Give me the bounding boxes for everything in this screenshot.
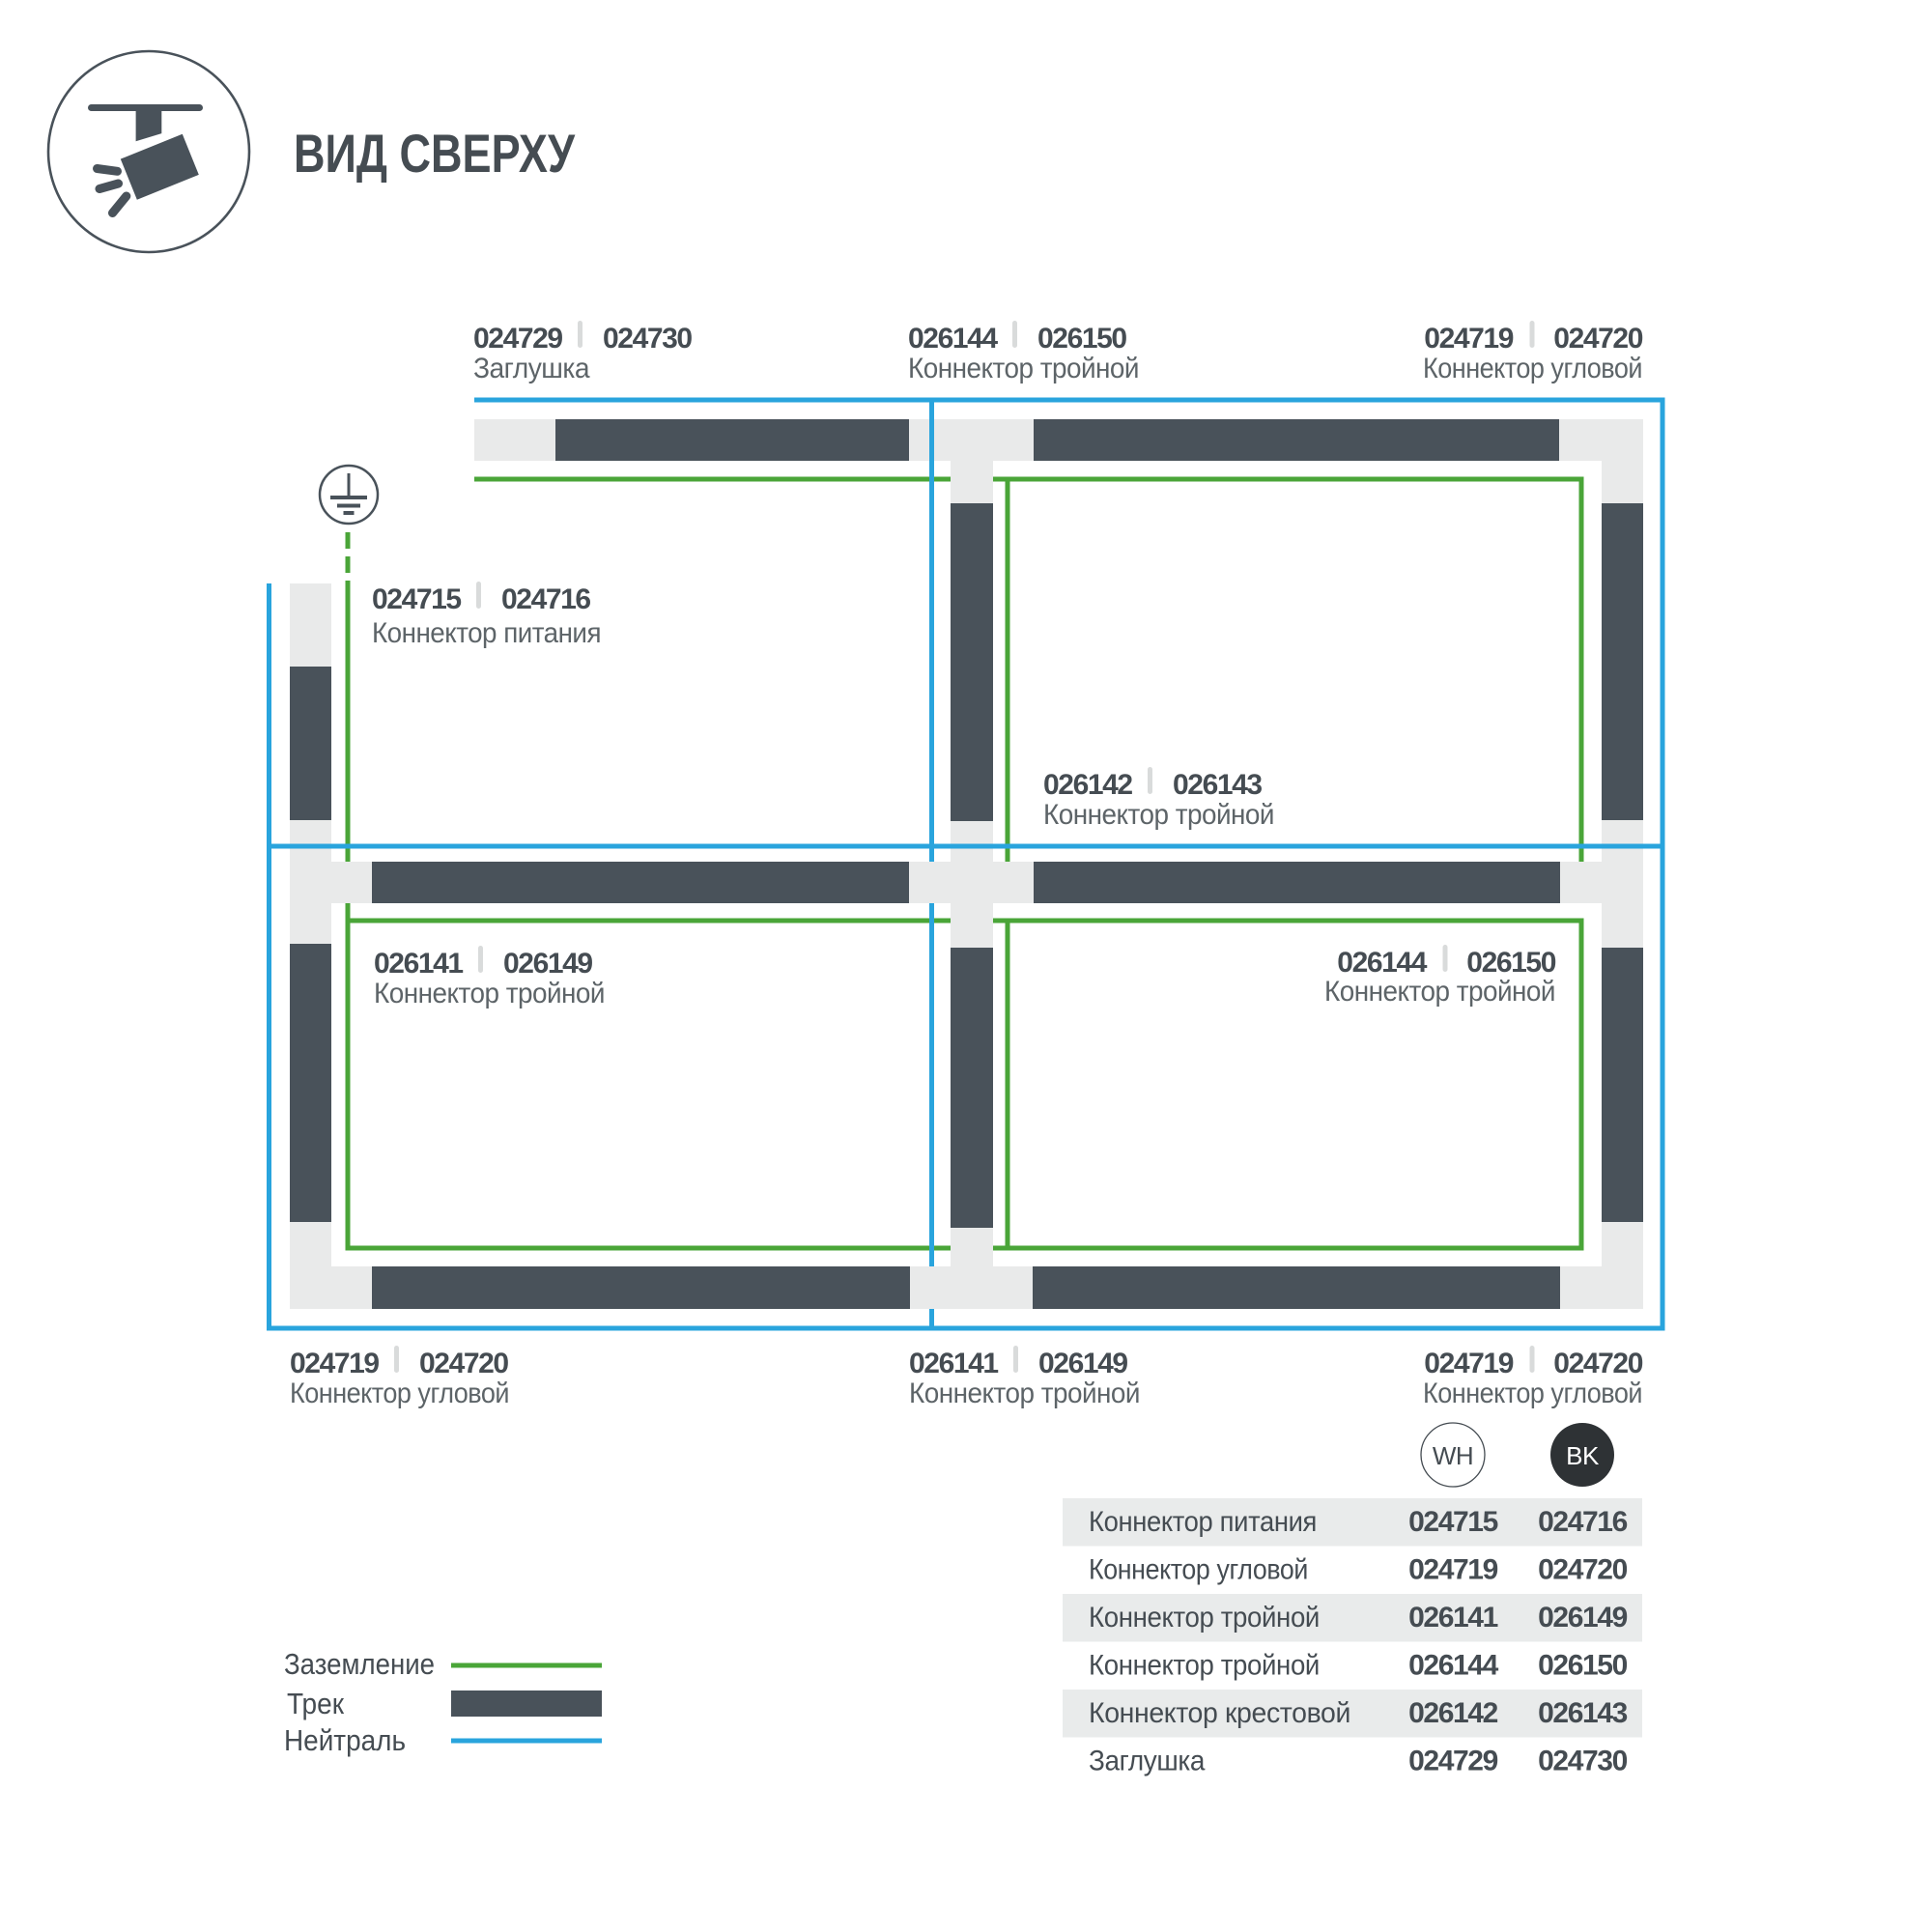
svg-text:Коннектор крестовой: Коннектор крестовой: [1089, 1697, 1350, 1729]
svg-text:Заглушка: Заглушка: [1089, 1746, 1206, 1777]
svg-text:026143: 026143: [1173, 769, 1262, 801]
svg-text:026150: 026150: [1466, 947, 1555, 979]
svg-text:Заземление: Заземление: [284, 1647, 435, 1681]
svg-text:024720: 024720: [1553, 323, 1642, 355]
svg-text:024720: 024720: [1553, 1348, 1642, 1379]
svg-text:Коннектор тройной: Коннектор тройной: [1089, 1650, 1320, 1682]
svg-text:024716: 024716: [501, 583, 590, 615]
svg-text:WH: WH: [1433, 1441, 1473, 1470]
svg-text:026149: 026149: [1038, 1348, 1127, 1379]
svg-text:024719: 024719: [290, 1348, 379, 1379]
svg-text:Коннектор угловой: Коннектор угловой: [290, 1378, 509, 1409]
svg-text:Коннектор тройной: Коннектор тройной: [909, 1378, 1140, 1409]
svg-text:Трек: Трек: [287, 1687, 344, 1720]
svg-text:026144: 026144: [908, 323, 998, 355]
svg-text:026141: 026141: [374, 948, 463, 980]
svg-text:026150: 026150: [1538, 1650, 1627, 1682]
svg-text:024719: 024719: [1424, 1348, 1513, 1379]
svg-text:Коннектор угловой: Коннектор угловой: [1423, 353, 1642, 384]
svg-text:026144: 026144: [1337, 947, 1427, 979]
svg-text:024729: 024729: [473, 323, 562, 355]
svg-text:Коннектор угловой: Коннектор угловой: [1089, 1554, 1308, 1586]
svg-text:Коннектор питания: Коннектор питания: [372, 617, 601, 649]
svg-text:024720: 024720: [419, 1348, 508, 1379]
svg-text:026141: 026141: [1408, 1602, 1497, 1634]
svg-text:ВИД СВЕРХУ: ВИД СВЕРХУ: [294, 123, 576, 184]
svg-text:Коннектор угловой: Коннектор угловой: [1423, 1378, 1642, 1409]
svg-text:BK: BK: [1566, 1441, 1600, 1470]
svg-text:026149: 026149: [503, 948, 592, 980]
svg-text:Коннектор тройной: Коннектор тройной: [1043, 799, 1274, 831]
svg-text:024719: 024719: [1408, 1554, 1497, 1586]
svg-text:026149: 026149: [1538, 1602, 1627, 1634]
svg-text:Коннектор тройной: Коннектор тройной: [374, 978, 605, 1009]
svg-text:024729: 024729: [1408, 1746, 1497, 1777]
svg-text:Коннектор питания: Коннектор питания: [1089, 1506, 1317, 1538]
svg-text:024715: 024715: [372, 583, 461, 615]
svg-text:Нейтраль: Нейтраль: [284, 1723, 406, 1757]
svg-text:026142: 026142: [1408, 1697, 1497, 1729]
svg-text:024730: 024730: [603, 323, 692, 355]
svg-text:026141: 026141: [909, 1348, 998, 1379]
svg-text:024730: 024730: [1538, 1746, 1627, 1777]
svg-text:024715: 024715: [1408, 1506, 1497, 1538]
svg-text:Коннектор тройной: Коннектор тройной: [1324, 976, 1555, 1008]
svg-text:024716: 024716: [1538, 1506, 1627, 1538]
svg-text:Коннектор тройной: Коннектор тройной: [908, 353, 1139, 384]
svg-text:Коннектор тройной: Коннектор тройной: [1089, 1602, 1320, 1634]
svg-text:026143: 026143: [1538, 1697, 1627, 1729]
svg-text:024719: 024719: [1424, 323, 1513, 355]
svg-text:Заглушка: Заглушка: [473, 353, 590, 384]
svg-text:026142: 026142: [1043, 769, 1132, 801]
svg-text:024720: 024720: [1538, 1554, 1627, 1586]
svg-text:026150: 026150: [1037, 323, 1126, 355]
svg-text:026144: 026144: [1408, 1650, 1498, 1682]
